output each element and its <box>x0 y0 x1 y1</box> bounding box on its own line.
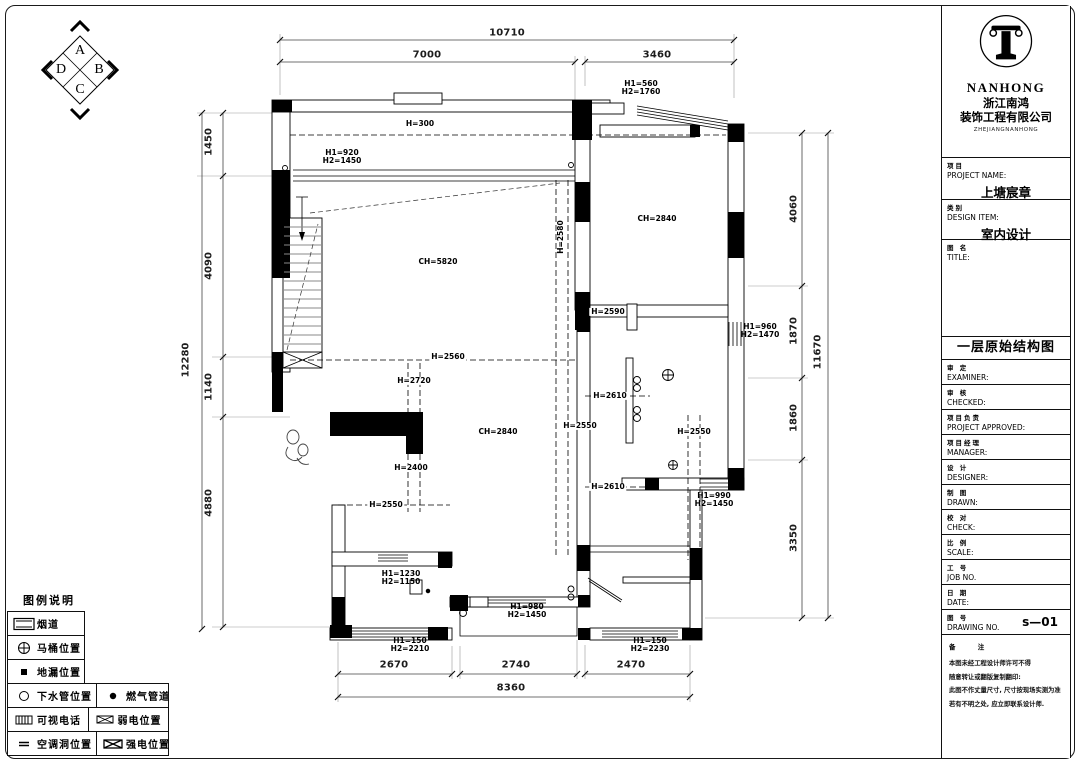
legend-item: 燃气管道 <box>96 684 174 707</box>
note-line: 若有不明之处, 应立即联系设计师. <box>949 698 1063 712</box>
compass-letter: B <box>94 62 103 78</box>
titleblock-row: 图 号DRAWING NO.s—01 <box>942 610 1070 635</box>
plan-label: CH=2840 <box>638 215 677 223</box>
brand-cn2: 装饰工程有限公司 <box>942 110 1070 124</box>
plan-label: H=2610 <box>589 483 626 491</box>
notes-lines: 本图未经工程设计师许可不得随意转让或翻版复制翻印:此图不作丈量尺寸, 尺寸按现场… <box>949 657 1063 711</box>
field-label-en: SCALE: <box>947 548 1065 557</box>
field-label-en: MANAGER: <box>947 448 1065 457</box>
plan-label: H=2580 <box>557 220 565 253</box>
brand-cn1: 浙江南鸿 <box>942 96 1070 110</box>
plan-label: H=2590 <box>589 308 626 316</box>
plan-label: H=2720 <box>395 377 432 385</box>
plan-label: 1860 <box>789 404 800 432</box>
legend: 图例说明 烟道马桶位置地漏位置下水管位置燃气管道可视电话弱电位置空调洞位置强电位… <box>7 592 169 756</box>
plan-label: 4880 <box>204 489 215 517</box>
field-label-en: CHECK: <box>947 523 1065 532</box>
legend-item: 烟道 <box>8 612 84 635</box>
plan-label: 12280 <box>181 343 192 378</box>
plan-label: 7000 <box>413 50 442 61</box>
plan-label: H1=920 H2=1450 <box>323 149 362 166</box>
plan-label: H1=150 H2=2230 <box>631 637 670 654</box>
legend-row: 马桶位置 <box>7 635 85 660</box>
field-title: 图 名 TITLE: <box>942 240 1070 337</box>
weak-current-icon <box>92 715 118 724</box>
strong-current-icon <box>100 739 126 749</box>
field-label-cn: 审 定 <box>947 362 1065 372</box>
legend-row: 烟道 <box>7 611 85 636</box>
brand-name: NANHONG <box>942 80 1070 96</box>
video-phone-icon <box>11 715 37 725</box>
plan-label: H=2560 <box>429 353 466 361</box>
plan-label: 2470 <box>617 660 646 671</box>
note-line: 此图不作丈量尺寸, 尺寸按现场实测为准 <box>949 684 1063 698</box>
field-label-cn: 项目经理 <box>947 437 1065 447</box>
note-line: 本图未经工程设计师许可不得 <box>949 657 1063 671</box>
legend-row: 可视电话弱电位置 <box>7 707 169 732</box>
plan-label: H=300 <box>406 120 434 128</box>
legend-item: 地漏位置 <box>8 660 85 683</box>
plan-label: 2740 <box>502 660 531 671</box>
plan-label: H1=560 H2=1760 <box>622 80 661 97</box>
ac-hole-icon <box>11 740 37 748</box>
field-label-en: PROJECT APPROVED: <box>947 423 1065 432</box>
field-label-cn: 比 例 <box>947 537 1065 547</box>
field-label-en: PROJECT NAME: <box>947 171 1065 180</box>
title-block: NANHONG 浙江南鸿 装饰工程有限公司 ZHEJIANGNANHONG 项目… <box>941 6 1071 758</box>
plan-label: 1870 <box>789 317 800 345</box>
compass-letter: C <box>75 82 84 98</box>
field-label-en: DRAWN: <box>947 498 1065 507</box>
legend-item-label: 下水管位置 <box>37 688 92 703</box>
plan-label: H=2550 <box>675 428 712 436</box>
legend-row: 下水管位置燃气管道 <box>7 683 169 708</box>
legend-item-label: 可视电话 <box>37 712 81 727</box>
field-label-cn: 日 期 <box>947 587 1065 597</box>
plan-label: 11670 <box>813 335 824 370</box>
notes-label-cn: 备 注 <box>949 641 1063 651</box>
titleblock-row: 制 图DRAWN: <box>942 485 1070 510</box>
field-label-en: CHECKED: <box>947 398 1065 407</box>
plan-label: 1450 <box>204 128 215 156</box>
legend-item-label: 弱电位置 <box>118 712 162 727</box>
gas-pipe-icon <box>100 691 126 701</box>
legend-rows: 烟道马桶位置地漏位置下水管位置燃气管道可视电话弱电位置空调洞位置强电位置 <box>7 611 169 756</box>
flue-icon <box>11 617 37 631</box>
plan-label: H1=980 H2=1450 <box>508 603 547 620</box>
legend-item: 空调洞位置 <box>8 732 96 755</box>
compass-letter: A <box>75 43 85 59</box>
plan-label: 8360 <box>497 683 526 694</box>
field-project-name: 项目 PROJECT NAME: 上塘宸章 <box>942 158 1070 200</box>
plan-label: CH=2840 <box>479 428 518 436</box>
drawing-title: 一层原始结构图 <box>942 337 1070 360</box>
field-label-cn: 设 计 <box>947 462 1065 472</box>
nanhong-column-logo-icon <box>974 12 1038 74</box>
plan-label: 2670 <box>380 660 409 671</box>
legend-title: 图例说明 <box>7 592 169 608</box>
drawing-number-value: s—01 <box>1022 615 1058 629</box>
legend-item-label: 强电位置 <box>126 736 170 751</box>
drain-pipe-icon <box>11 690 37 702</box>
plan-label: H=2550 <box>561 422 598 430</box>
plan-label: H=2550 <box>367 501 404 509</box>
toilet-icon <box>11 641 37 655</box>
titleblock-row: 项目负责PROJECT APPROVED: <box>942 410 1070 435</box>
plan-label: H1=1230 H2=1150 <box>382 570 421 587</box>
legend-row: 空调洞位置强电位置 <box>7 731 169 756</box>
plan-label: 3460 <box>643 50 672 61</box>
project-name-value: 上塘宸章 <box>947 182 1065 201</box>
legend-item-label: 烟道 <box>37 616 59 631</box>
plan-label: H=2400 <box>392 464 429 472</box>
plan-label: 1140 <box>204 373 215 401</box>
titleblock-row: 项目经理MANAGER: <box>942 435 1070 460</box>
note-line: 随意转让或翻版复制翻印: <box>949 671 1063 685</box>
titleblock-row: 日 期DATE: <box>942 585 1070 610</box>
field-label-en: TITLE: <box>947 253 1065 262</box>
plan-label: H1=960 H2=1470 <box>741 323 780 340</box>
titleblock-rows: 审 定EXAMINER:审 核CHECKED:项目负责PROJECT APPRO… <box>942 360 1070 635</box>
field-label-en: DATE: <box>947 598 1065 607</box>
field-label-cn: 审 核 <box>947 387 1065 397</box>
field-label-cn: 类别 <box>947 202 1065 212</box>
plan-label: H1=990 H2=1450 <box>695 492 734 509</box>
company-logo-box: NANHONG 浙江南鸿 装饰工程有限公司 ZHEJIANGNANHONG <box>942 6 1070 158</box>
titleblock-row: 审 定EXAMINER: <box>942 360 1070 385</box>
titleblock-notes: 备 注 本图未经工程设计师许可不得随意转让或翻版复制翻印:此图不作丈量尺寸, 尺… <box>942 635 1070 717</box>
plan-label: 10710 <box>489 28 525 39</box>
field-label-en: DESIGNER: <box>947 473 1065 482</box>
titleblock-row: 审 核CHECKED: <box>942 385 1070 410</box>
plan-label: 3350 <box>789 524 800 552</box>
field-label-cn: 项目负责 <box>947 412 1065 422</box>
field-label-cn: 制 图 <box>947 487 1065 497</box>
field-label-cn: 工 号 <box>947 562 1065 572</box>
titleblock-row: 校 对CHECK: <box>942 510 1070 535</box>
legend-item-label: 燃气管道 <box>126 688 170 703</box>
legend-item: 可视电话 <box>8 708 88 731</box>
floor-drain-icon <box>11 668 37 676</box>
legend-item: 弱电位置 <box>88 708 169 731</box>
legend-item-label: 马桶位置 <box>37 640 81 655</box>
legend-item-label: 空调洞位置 <box>37 736 92 751</box>
field-label-cn: 项目 <box>947 160 1065 170</box>
plan-label: 4060 <box>789 195 800 223</box>
field-label-en: JOB NO. <box>947 573 1065 582</box>
legend-item: 下水管位置 <box>8 684 96 707</box>
brand-sub: ZHEJIANGNANHONG <box>942 127 1070 133</box>
plan-label: 4090 <box>204 252 215 280</box>
legend-row: 地漏位置 <box>7 659 85 684</box>
compass-letter: D <box>56 62 66 78</box>
field-label-cn: 校 对 <box>947 512 1065 522</box>
blueprint-page: 1071070003460145040901140488012280406018… <box>0 0 1080 764</box>
field-label-en: EXAMINER: <box>947 373 1065 382</box>
legend-item: 强电位置 <box>96 732 174 755</box>
field-design-item: 类别 DESIGN ITEM: 室内设计 <box>942 200 1070 240</box>
plan-label: H1=150 H2=2210 <box>391 637 430 654</box>
titleblock-row: 工 号JOB NO. <box>942 560 1070 585</box>
legend-item: 马桶位置 <box>8 636 85 659</box>
field-label-en: DESIGN ITEM: <box>947 213 1065 222</box>
titleblock-row: 设 计DESIGNER: <box>942 460 1070 485</box>
field-label-cn: 图 名 <box>947 242 1065 252</box>
plan-label: CH=5820 <box>419 258 458 266</box>
legend-item-label: 地漏位置 <box>37 664 81 679</box>
titleblock-row: 比 例SCALE: <box>942 535 1070 560</box>
plan-label: H=2610 <box>591 392 628 400</box>
